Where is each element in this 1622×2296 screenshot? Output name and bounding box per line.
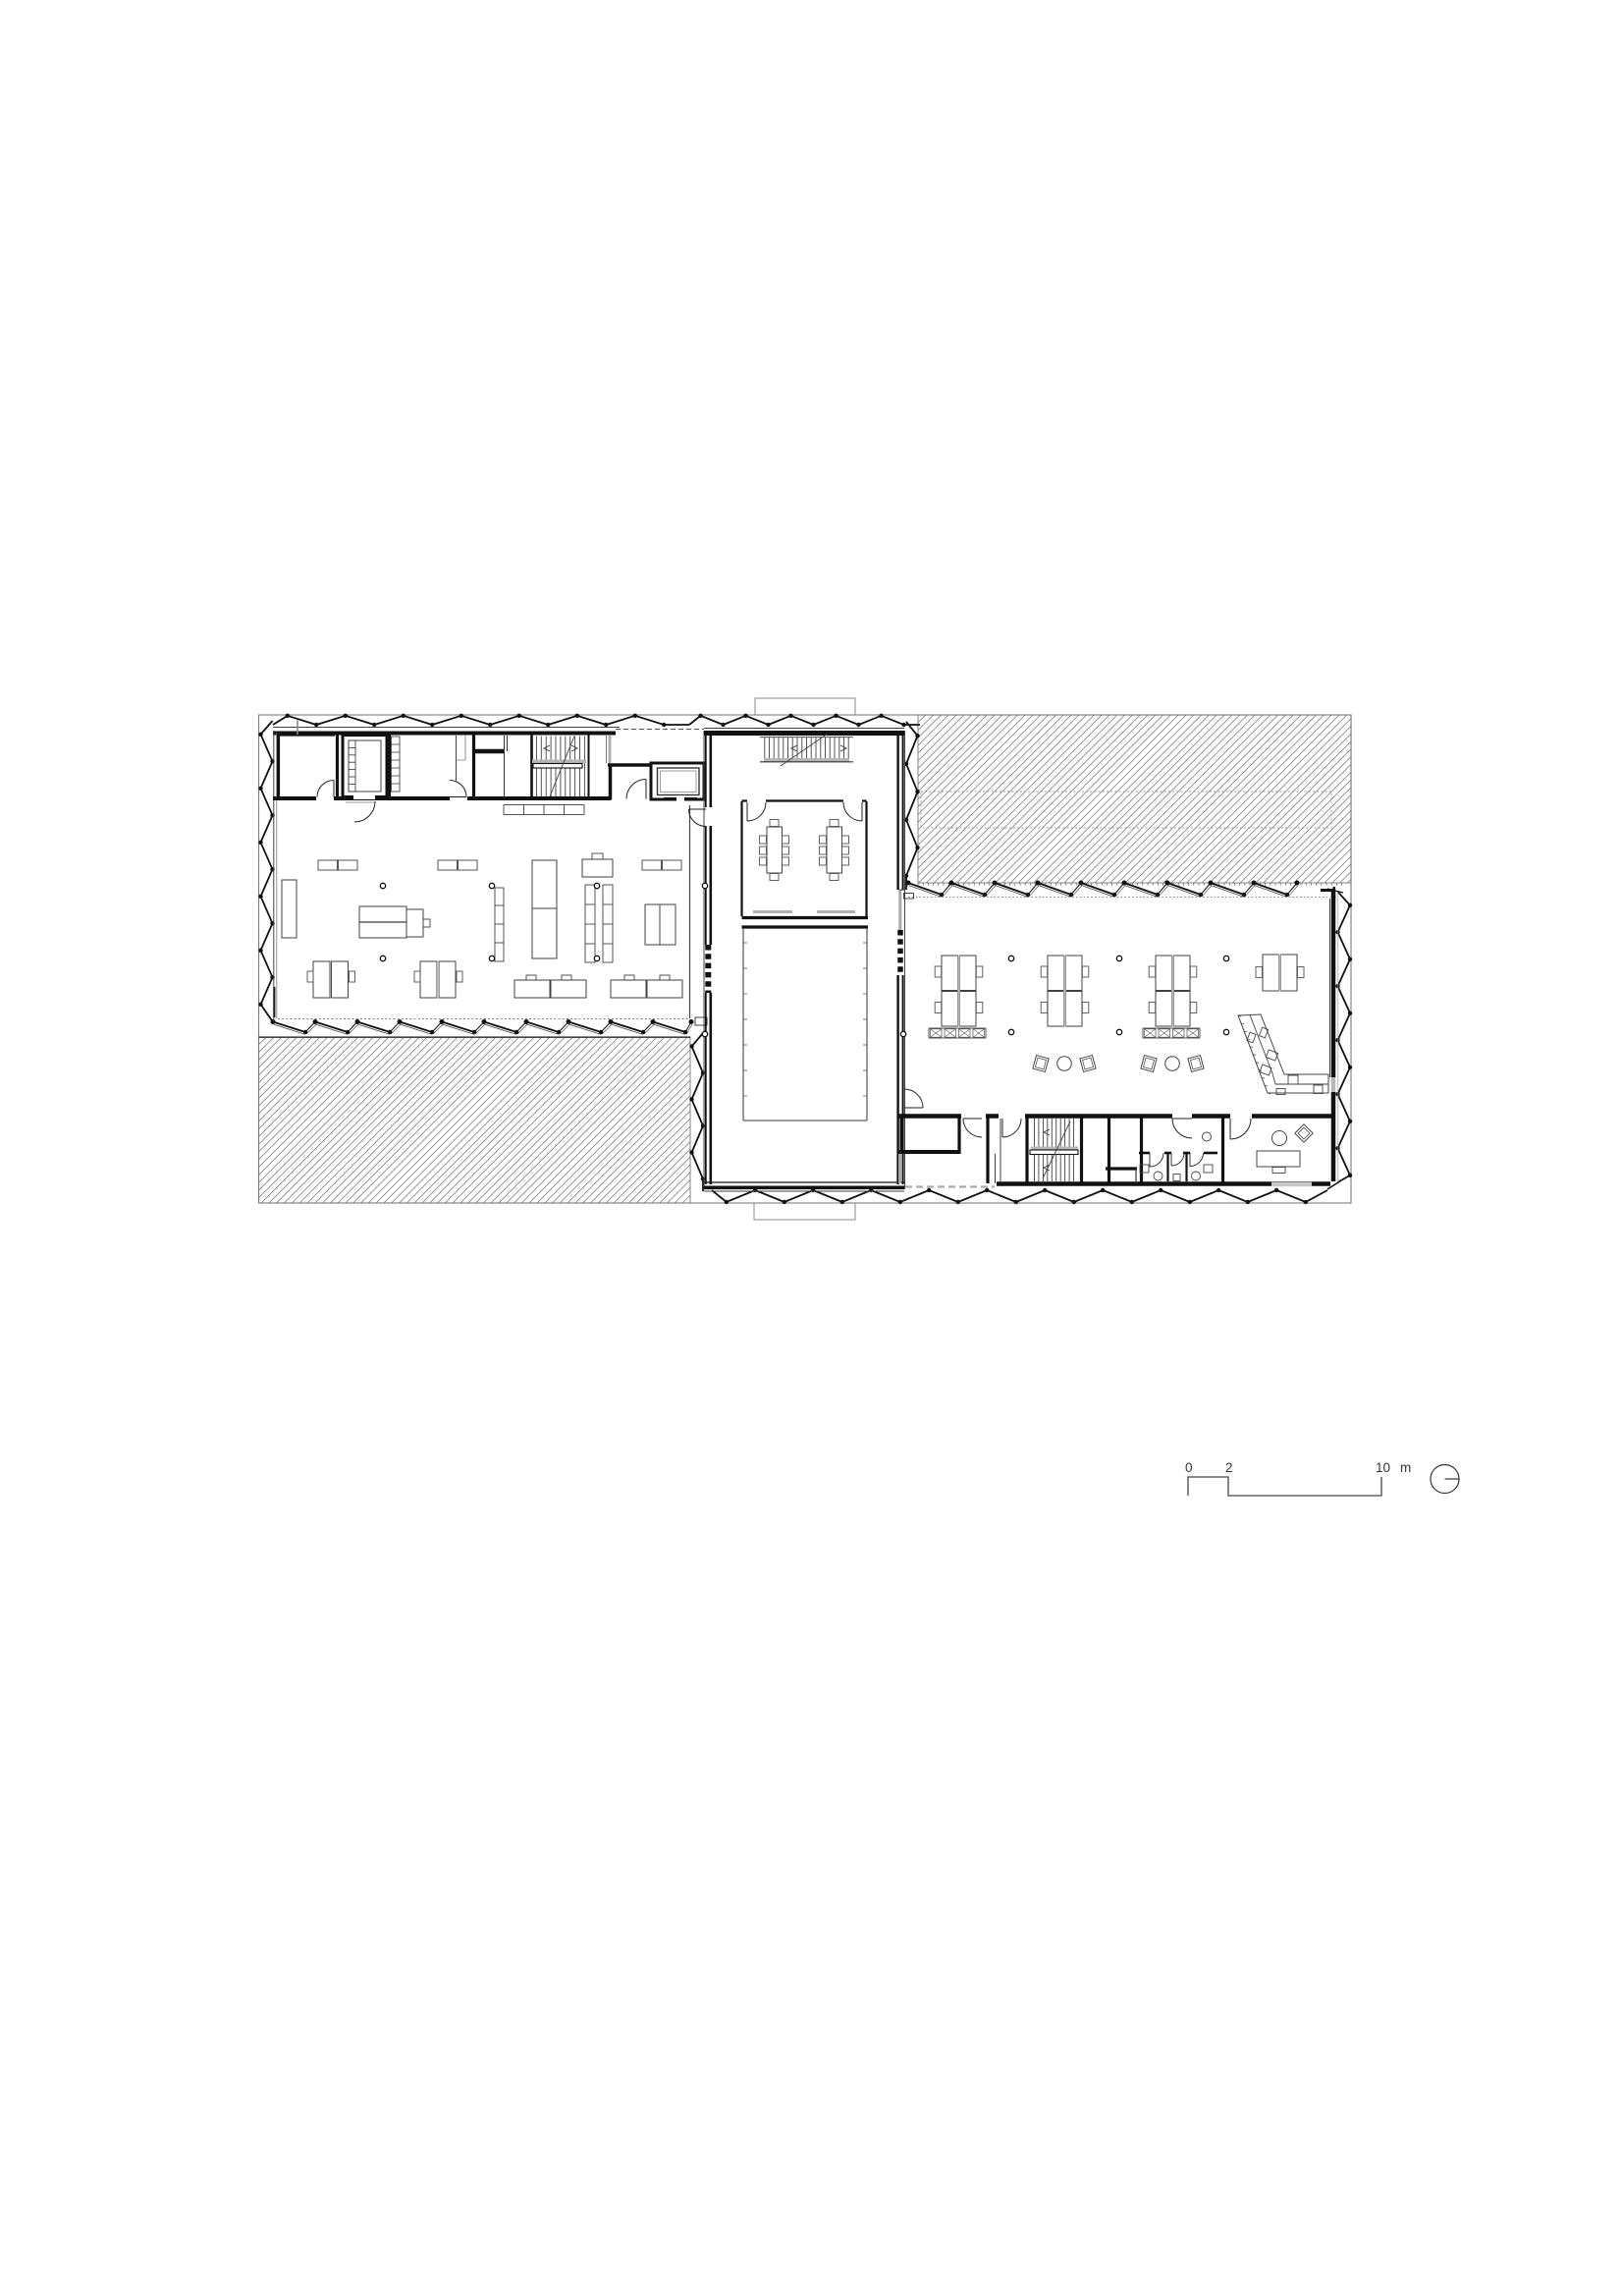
svg-text:2: 2 — [1225, 1460, 1233, 1475]
svg-text:0: 0 — [1185, 1460, 1193, 1475]
svg-text:m: m — [1400, 1460, 1411, 1475]
svg-text:10: 10 — [1376, 1460, 1390, 1475]
